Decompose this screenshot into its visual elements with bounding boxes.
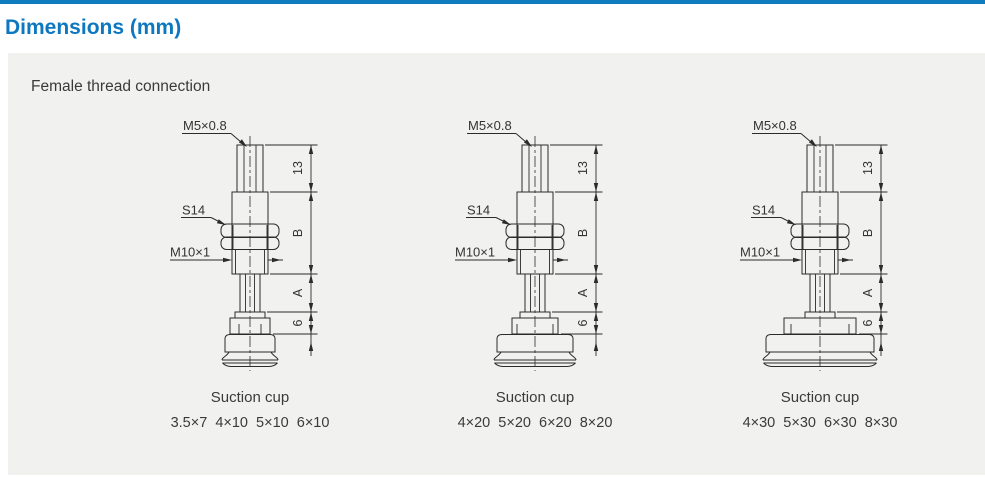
dim-label-6: 6 xyxy=(861,319,875,326)
fitting-drawing-small-cup: M5×0.8 S14 M10×1 xyxy=(125,112,410,380)
diagram-row: M5×0.8 S14 M10×1 xyxy=(125,112,985,433)
dim-label-13: 13 xyxy=(291,161,305,175)
dim-label-13: 13 xyxy=(861,161,875,175)
dim-label-6: 6 xyxy=(576,319,590,326)
panel-heading: Female thread connection xyxy=(31,77,985,96)
diagram-column-medium: M5×0.8 S14 M10×1 xyxy=(410,112,695,433)
diagram-column-small: M5×0.8 S14 M10×1 xyxy=(125,112,410,433)
suction-cup-caption: Suction cup xyxy=(410,388,660,407)
dim-label-A: A xyxy=(291,288,305,297)
suction-cup-caption: Suction cup xyxy=(125,388,375,407)
dimensions-panel: Female thread connection xyxy=(8,53,985,475)
fitting-drawing-medium-cup: M5×0.8 S14 M10×1 xyxy=(410,112,695,380)
thread-size-label-top: M5×0.8 xyxy=(183,118,227,133)
diagram-column-large: M5×0.8 S14 M10×1 xyxy=(695,112,980,433)
wrench-size-label: S14 xyxy=(752,203,775,218)
thread-size-label-top: M5×0.8 xyxy=(753,118,797,133)
dim-label-B: B xyxy=(576,229,590,237)
thread-size-label-bottom: M10×1 xyxy=(455,245,495,260)
wrench-size-label: S14 xyxy=(182,203,205,218)
dim-label-6: 6 xyxy=(291,319,305,326)
dim-label-A: A xyxy=(861,288,875,297)
dim-label-B: B xyxy=(291,229,305,237)
page-title: Dimensions (mm) xyxy=(5,16,985,40)
dim-label-A: A xyxy=(576,288,590,297)
suction-cup-sizes: 3.5×7 4×10 5×10 6×10 xyxy=(125,414,375,433)
thread-size-label-bottom: M10×1 xyxy=(740,245,780,260)
thread-size-label-top: M5×0.8 xyxy=(468,118,512,133)
fitting-drawing-large-cup: M5×0.8 S14 M10×1 xyxy=(695,112,980,380)
wrench-size-label: S14 xyxy=(467,203,490,218)
dim-label-13: 13 xyxy=(576,161,590,175)
top-accent-bar xyxy=(0,0,985,4)
suction-cup-caption: Suction cup xyxy=(695,388,945,407)
dim-label-B: B xyxy=(861,229,875,237)
suction-cup-sizes: 4×20 5×20 6×20 8×20 xyxy=(410,414,660,433)
thread-size-label-bottom: M10×1 xyxy=(170,245,210,260)
suction-cup-sizes: 4×30 5×30 6×30 8×30 xyxy=(695,414,945,433)
